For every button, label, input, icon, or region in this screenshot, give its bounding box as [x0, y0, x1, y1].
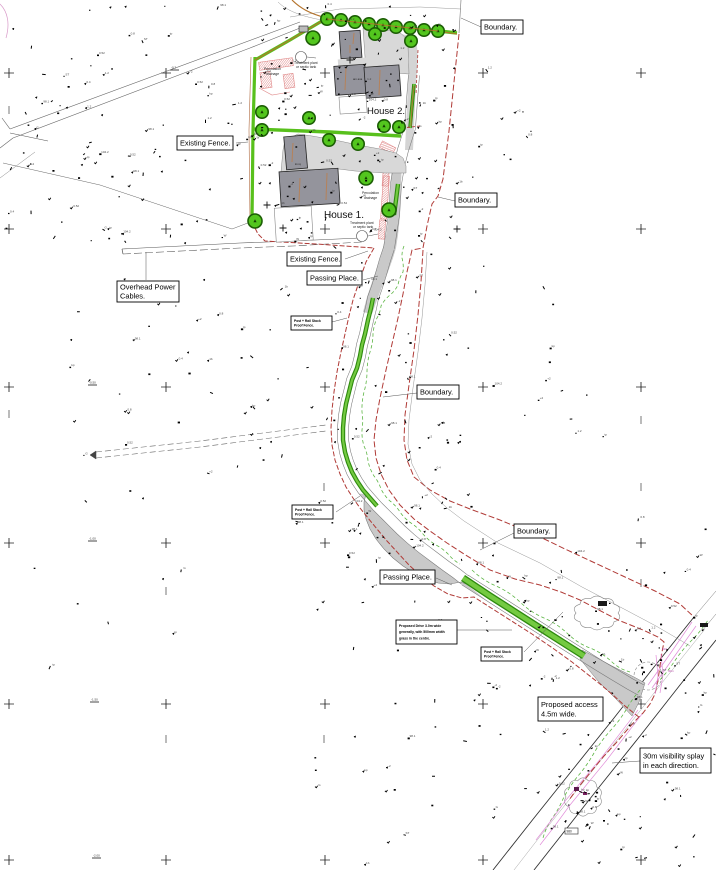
svg-text:kp: kp [364, 768, 368, 772]
svg-text:tp: tp [604, 433, 607, 437]
svg-text:W: W [257, 135, 260, 139]
svg-text:98.1: 98.1 [580, 809, 586, 813]
svg-text:tp: tp [52, 663, 55, 667]
svg-text:Boundary.: Boundary. [484, 23, 517, 32]
svg-text:kp: kp [581, 788, 585, 792]
svg-text:tp: tp [622, 845, 625, 849]
svg-text:1.2: 1.2 [545, 728, 550, 732]
svg-text:1b: 1b [602, 652, 606, 656]
svg-text:0.52: 0.52 [73, 204, 79, 208]
svg-text:1b: 1b [366, 861, 370, 865]
svg-text:W: W [508, 574, 511, 578]
svg-text:Cables.: Cables. [120, 291, 145, 300]
svg-text:98.1: 98.1 [135, 337, 141, 341]
svg-text:1.2: 1.2 [238, 101, 243, 105]
svg-text:0.52: 0.52 [320, 499, 326, 503]
svg-text:0.8: 0.8 [352, 92, 357, 96]
svg-text:0.4: 0.4 [10, 209, 15, 213]
svg-text:tp: tp [381, 158, 384, 162]
svg-text:0.8: 0.8 [637, 627, 642, 631]
svg-text:-2: -2 [398, 299, 401, 303]
svg-text:kp: kp [252, 403, 256, 407]
svg-text:1b: 1b [459, 179, 463, 183]
svg-text:1b: 1b [209, 357, 213, 361]
svg-text:Proof Fence.: Proof Fence. [295, 512, 315, 516]
svg-text:tp: tp [174, 630, 177, 634]
svg-text:104.2: 104.2 [577, 549, 585, 553]
svg-text:generally, with 500mm width: generally, with 500mm width [399, 630, 445, 634]
svg-text:0.8: 0.8 [219, 311, 224, 315]
svg-text:104.2: 104.2 [355, 499, 363, 503]
svg-text:tp: tp [480, 142, 483, 146]
svg-text:0.8: 0.8 [592, 805, 597, 809]
svg-text:0.52: 0.52 [284, 97, 290, 101]
svg-text:0.52: 0.52 [197, 80, 203, 84]
svg-text:grass in the centre.: grass in the centre. [399, 636, 430, 640]
svg-text:kp: kp [595, 744, 599, 748]
svg-text:98.1: 98.1 [133, 169, 139, 173]
svg-text:W: W [363, 194, 366, 198]
svg-text:98.1: 98.1 [220, 3, 226, 7]
svg-text:1b: 1b [281, 201, 285, 205]
svg-text:-2: -2 [271, 161, 274, 165]
svg-text:W: W [320, 89, 323, 93]
svg-text:104.2: 104.2 [495, 382, 503, 386]
svg-text:W: W [368, 509, 371, 513]
svg-text:tp: tp [109, 225, 112, 229]
svg-text:0.52: 0.52 [354, 435, 360, 439]
svg-text:kp: kp [526, 598, 530, 602]
svg-text:0.8: 0.8 [131, 31, 136, 35]
svg-text:0.4: 0.4 [437, 465, 442, 469]
svg-text:0.4: 0.4 [179, 357, 184, 361]
svg-text:1.2: 1.2 [400, 46, 405, 50]
svg-text:0.52: 0.52 [451, 331, 457, 335]
svg-text:0.52: 0.52 [671, 604, 677, 608]
svg-text:tp: tp [243, 325, 246, 329]
svg-text:ST: ST [413, 186, 417, 190]
svg-text:ST: ST [663, 668, 667, 672]
svg-text:0.52: 0.52 [559, 781, 565, 785]
svg-text:kp: kp [209, 92, 213, 96]
svg-text:0.52: 0.52 [341, 201, 347, 205]
svg-text:-2: -2 [388, 764, 391, 768]
svg-text:98.1: 98.1 [478, 561, 484, 565]
svg-text:4.5m wide.: 4.5m wide. [541, 709, 577, 718]
svg-text:98.1: 98.1 [637, 695, 643, 699]
svg-text:0.52: 0.52 [127, 441, 133, 445]
svg-text:Post + Rail Stock: Post + Rail Stock [295, 508, 322, 512]
svg-text:0.8: 0.8 [528, 133, 533, 137]
svg-text:Post + Rail Stock: Post + Rail Stock [294, 319, 321, 323]
svg-text:30m: 30m [668, 669, 674, 673]
svg-text:kp: kp [277, 19, 281, 23]
svg-text:+2: +2 [517, 109, 521, 113]
svg-text:Overhead Power: Overhead Power [120, 283, 176, 292]
svg-text:+2: +2 [374, 583, 378, 587]
svg-text:1.2: 1.2 [105, 71, 110, 75]
svg-text:-2: -2 [421, 207, 424, 211]
svg-text:Boundary.: Boundary. [517, 527, 550, 536]
svg-text:98.1: 98.1 [343, 344, 349, 348]
svg-text:-2: -2 [363, 115, 366, 119]
svg-text:kp: kp [687, 730, 691, 734]
svg-text:Existing Fence.: Existing Fence. [290, 255, 341, 264]
svg-text:98.1: 98.1 [298, 520, 304, 524]
svg-text:98.1: 98.1 [414, 504, 420, 508]
svg-text:0.8: 0.8 [384, 97, 389, 101]
svg-text:980: 980 [567, 830, 573, 834]
svg-text:1.2: 1.2 [651, 626, 656, 630]
svg-text:0.8: 0.8 [422, 537, 427, 541]
svg-text:kp: kp [71, 363, 75, 367]
svg-text:-2: -2 [543, 675, 546, 679]
svg-text:0.8: 0.8 [640, 515, 645, 519]
svg-text:tp: tp [625, 756, 628, 760]
svg-text:98.1: 98.1 [597, 607, 603, 611]
svg-text:am ava: am ava [353, 77, 363, 81]
svg-text:-2: -2 [190, 69, 193, 73]
svg-text:104.2: 104.2 [416, 543, 424, 547]
svg-text:W: W [591, 821, 594, 825]
svg-text:0.52: 0.52 [261, 163, 267, 167]
svg-text:W: W [700, 553, 703, 557]
svg-text:1.2: 1.2 [367, 77, 372, 81]
svg-text:+2: +2 [376, 151, 380, 155]
svg-text:in each direction.: in each direction. [643, 761, 699, 770]
svg-text:or septic tank: or septic tank [296, 65, 316, 69]
svg-text:98.1: 98.1 [391, 278, 397, 282]
svg-text:98.1: 98.1 [553, 824, 559, 828]
svg-text:0.8: 0.8 [127, 408, 132, 412]
svg-text:ST: ST [419, 273, 423, 277]
svg-text:kp: kp [704, 691, 708, 695]
svg-text:tp: tp [585, 798, 588, 802]
svg-text:W: W [536, 648, 539, 652]
svg-text:0.8: 0.8 [211, 82, 216, 86]
svg-text:+2: +2 [540, 396, 544, 400]
svg-text:-2: -2 [290, 182, 293, 186]
svg-text:W: W [620, 770, 623, 774]
svg-text:+2: +2 [628, 735, 632, 739]
svg-text:Passing Place.: Passing Place. [383, 573, 432, 582]
svg-text:1.2: 1.2 [556, 676, 561, 680]
svg-text:Passing Place.: Passing Place. [310, 274, 359, 283]
svg-text:+2: +2 [198, 317, 202, 321]
svg-text:W: W [224, 233, 227, 237]
svg-text:98.1: 98.1 [43, 99, 49, 103]
svg-text:kp: kp [439, 119, 443, 123]
svg-text:House 2.: House 2. [367, 106, 405, 117]
svg-text:-1.50: -1.50 [91, 698, 98, 702]
svg-text:0.52: 0.52 [326, 158, 332, 162]
svg-text:0.4: 0.4 [327, 2, 332, 6]
svg-text:tp: tp [332, 188, 335, 192]
svg-text:tp: tp [695, 613, 698, 617]
svg-text:W: W [296, 237, 299, 241]
svg-text:kp: kp [552, 344, 556, 348]
svg-text:+2: +2 [424, 493, 428, 497]
svg-text:tp: tp [420, 231, 423, 235]
svg-text:0.4: 0.4 [687, 567, 692, 571]
svg-text:98.1: 98.1 [391, 421, 397, 425]
svg-text:Proposed Drive 3.0m wide: Proposed Drive 3.0m wide [399, 624, 441, 628]
svg-text:98.1: 98.1 [675, 786, 681, 790]
svg-text:0.4: 0.4 [267, 69, 272, 73]
svg-text:104.2: 104.2 [123, 230, 131, 234]
svg-text:-2: -2 [498, 684, 501, 688]
svg-text:1b: 1b [285, 285, 289, 289]
svg-text:1b: 1b [312, 128, 316, 132]
svg-text:-2: -2 [494, 683, 497, 687]
svg-text:Post + Rail Stock: Post + Rail Stock [484, 650, 511, 654]
svg-text:1b: 1b [449, 505, 453, 509]
svg-text:kp: kp [414, 24, 418, 28]
svg-text:0.8: 0.8 [569, 666, 574, 670]
svg-text:+2: +2 [209, 470, 213, 474]
svg-text:ST: ST [676, 662, 680, 666]
svg-text:tp: tp [597, 797, 600, 801]
svg-text:1b: 1b [423, 101, 427, 105]
svg-text:1.2: 1.2 [292, 59, 297, 63]
svg-text:tp: tp [87, 155, 90, 159]
svg-text:ST: ST [65, 72, 69, 76]
svg-text:tp: tp [238, 142, 241, 146]
svg-text:Proof Fence.: Proof Fence. [484, 654, 504, 658]
svg-text:tp: tp [170, 32, 173, 36]
svg-text:kx.iq: kx.iq [295, 162, 301, 166]
svg-text:kp: kp [524, 574, 528, 578]
svg-text:104.2: 104.2 [347, 17, 355, 21]
svg-text:Proposed access: Proposed access [541, 700, 598, 709]
svg-text:-2: -2 [406, 117, 409, 121]
svg-text:1b: 1b [621, 657, 625, 661]
svg-text:104.2: 104.2 [369, 97, 377, 101]
svg-text:0.52: 0.52 [130, 153, 136, 157]
svg-text:1.2: 1.2 [207, 116, 212, 120]
svg-text:1.2: 1.2 [488, 66, 493, 70]
svg-text:0.8: 0.8 [372, 227, 377, 231]
svg-text:tp: tp [299, 215, 302, 219]
svg-text:Proof Fence.: Proof Fence. [294, 323, 314, 327]
svg-text:104.2: 104.2 [101, 150, 109, 154]
svg-text:or septic tank: or septic tank [353, 225, 373, 229]
svg-text:+2: +2 [547, 376, 551, 380]
svg-text:98.1: 98.1 [557, 576, 563, 580]
svg-text:1.2: 1.2 [87, 105, 92, 109]
svg-text:-2.00: -2.00 [93, 854, 100, 858]
svg-text:-2: -2 [429, 434, 432, 438]
svg-text:Boundary.: Boundary. [458, 196, 491, 205]
svg-text:tp: tp [378, 556, 381, 560]
svg-text:0.4: 0.4 [337, 310, 342, 314]
svg-text:-2: -2 [644, 733, 647, 737]
svg-text:0.52: 0.52 [349, 551, 355, 555]
svg-text:kp: kp [586, 788, 590, 792]
svg-text:0.4: 0.4 [328, 214, 333, 218]
svg-text:0.8: 0.8 [631, 722, 636, 726]
svg-text:ST: ST [144, 37, 148, 41]
svg-text:Boundary.: Boundary. [420, 388, 453, 397]
svg-text:tp: tp [310, 234, 313, 238]
svg-text:drainage: drainage [364, 196, 377, 200]
svg-text:ST: ST [405, 831, 409, 835]
svg-text:kp: kp [617, 812, 621, 816]
svg-text:+2: +2 [611, 719, 615, 723]
svg-text:tp: tp [435, 96, 438, 100]
svg-text:tp: tp [321, 84, 324, 88]
svg-text:Existing Fence.: Existing Fence. [180, 139, 231, 148]
svg-text:98.1: 98.1 [352, 527, 358, 531]
svg-text:98.1: 98.1 [148, 127, 154, 131]
svg-text:0.52: 0.52 [99, 51, 105, 55]
svg-text:-0.50: -0.50 [89, 381, 96, 385]
svg-text:0.4: 0.4 [86, 80, 91, 84]
svg-text:-1.00: -1.00 [89, 537, 96, 541]
svg-text:98.1: 98.1 [410, 734, 416, 738]
svg-text:30m visibility splay: 30m visibility splay [643, 751, 705, 760]
svg-text:1.2: 1.2 [577, 429, 582, 433]
